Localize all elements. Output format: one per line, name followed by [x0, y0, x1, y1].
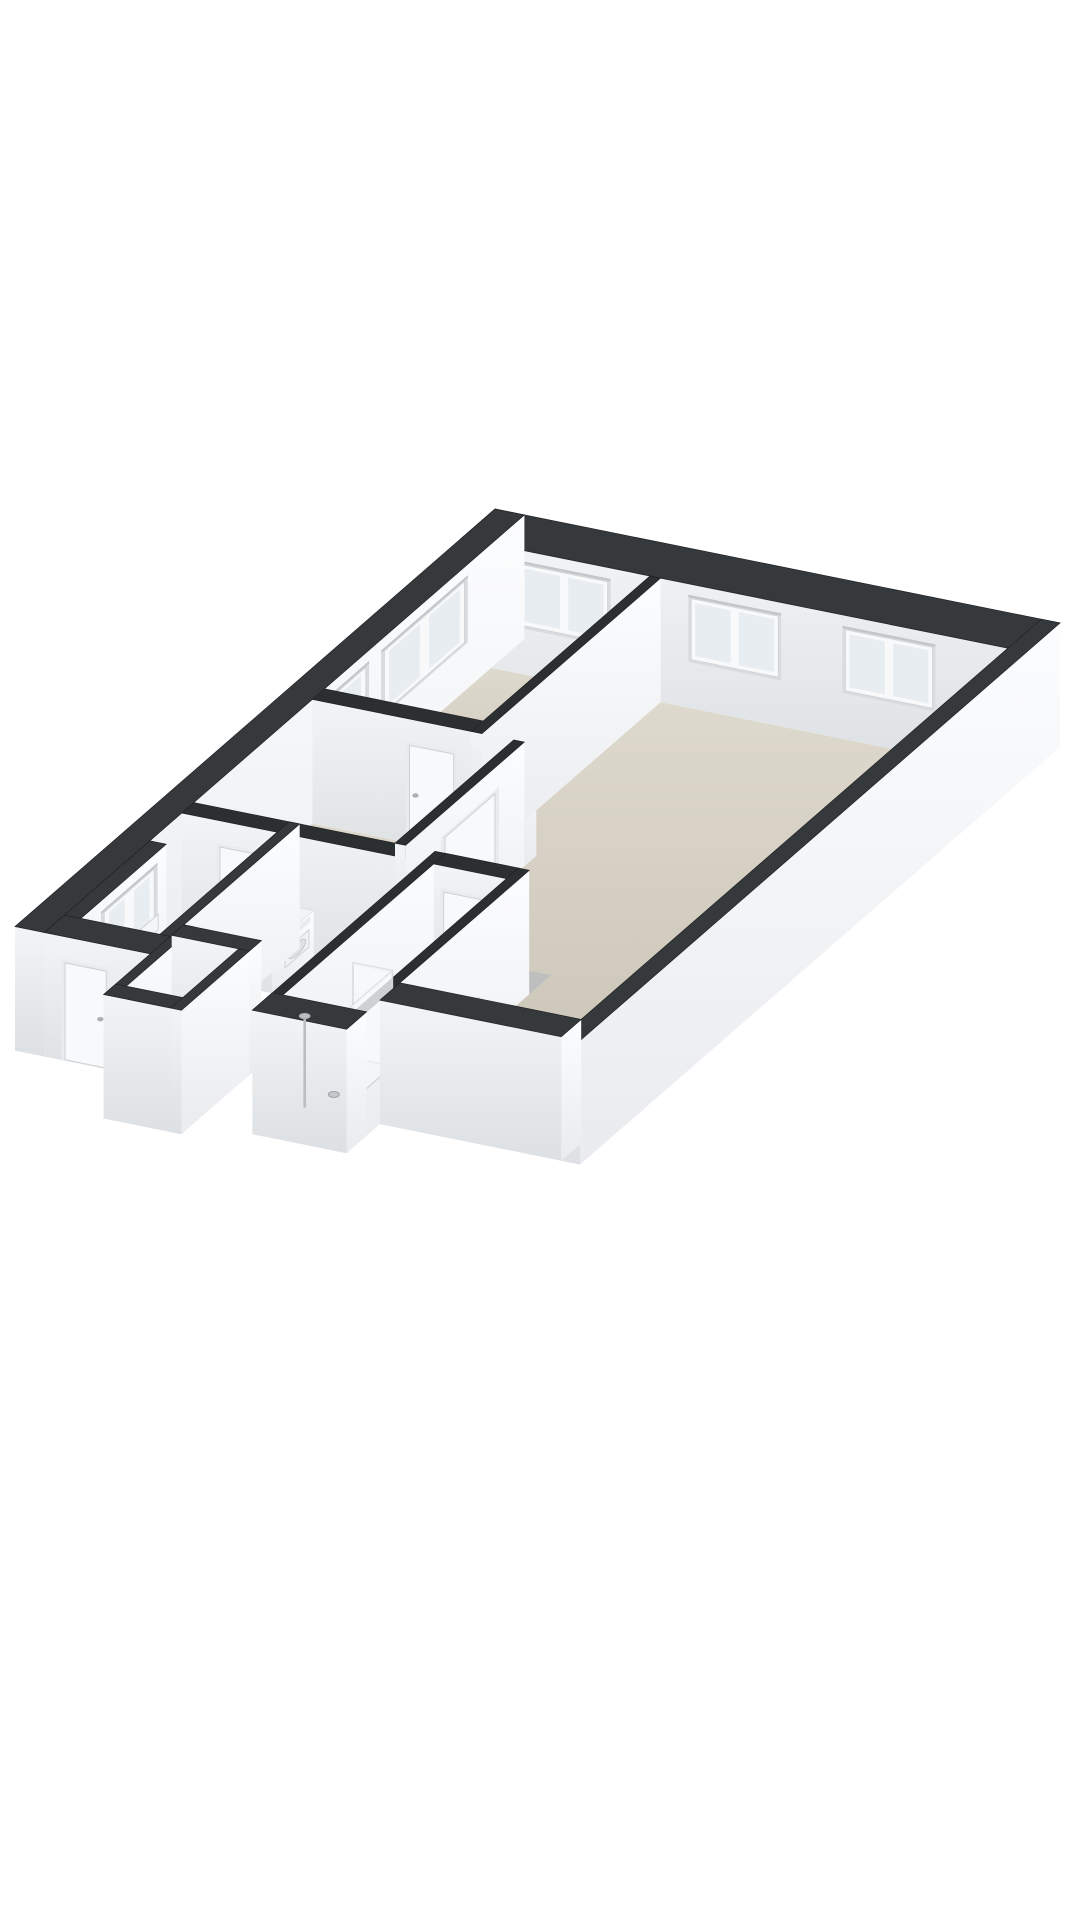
- page-background: [0, 0, 1080, 1920]
- wall-sw-living-face-se: [561, 1019, 581, 1160]
- shower-head-icon: [299, 1013, 310, 1019]
- window-bedroom-ne-glass: [525, 569, 560, 629]
- door-entrance: [65, 963, 106, 1068]
- window-living-ne-1-glass: [695, 603, 730, 663]
- floorplan-geometry: [15, 509, 1060, 1165]
- wall-bathroom-sw-face-se: [347, 1012, 367, 1153]
- floorplan-3d-render: [0, 0, 1080, 1920]
- door-entrance-handle-icon: [97, 1017, 103, 1021]
- wall-storage-se-face-sw: [171, 1008, 182, 1134]
- shower-drain: [328, 1091, 339, 1097]
- window-living-ne-2-glass: [850, 634, 885, 694]
- wall-bathroom-sw-face-sw: [252, 1010, 346, 1153]
- window-living-ne-2-glass: [893, 643, 928, 703]
- door-bedroom-handle-icon: [412, 793, 418, 797]
- wall-storage-sw-face-sw: [104, 995, 182, 1135]
- wall-nw-facade-face-sw: [15, 927, 44, 1057]
- window-living-ne-1-glass: [739, 612, 774, 672]
